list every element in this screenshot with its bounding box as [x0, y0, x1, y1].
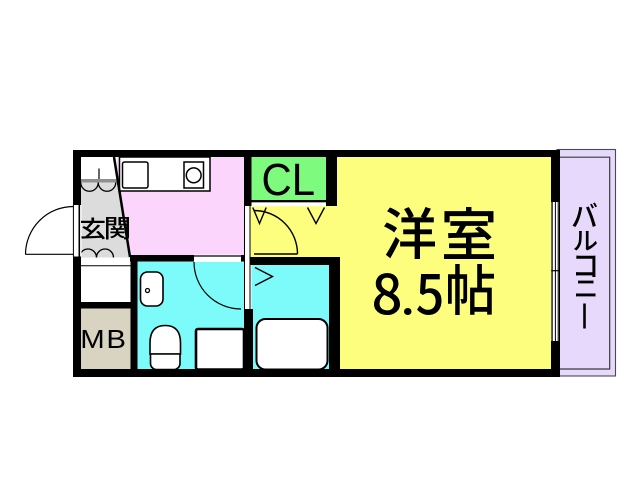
svg-text:MB: MB — [80, 324, 127, 353]
svg-text:CL: CL — [262, 156, 315, 206]
